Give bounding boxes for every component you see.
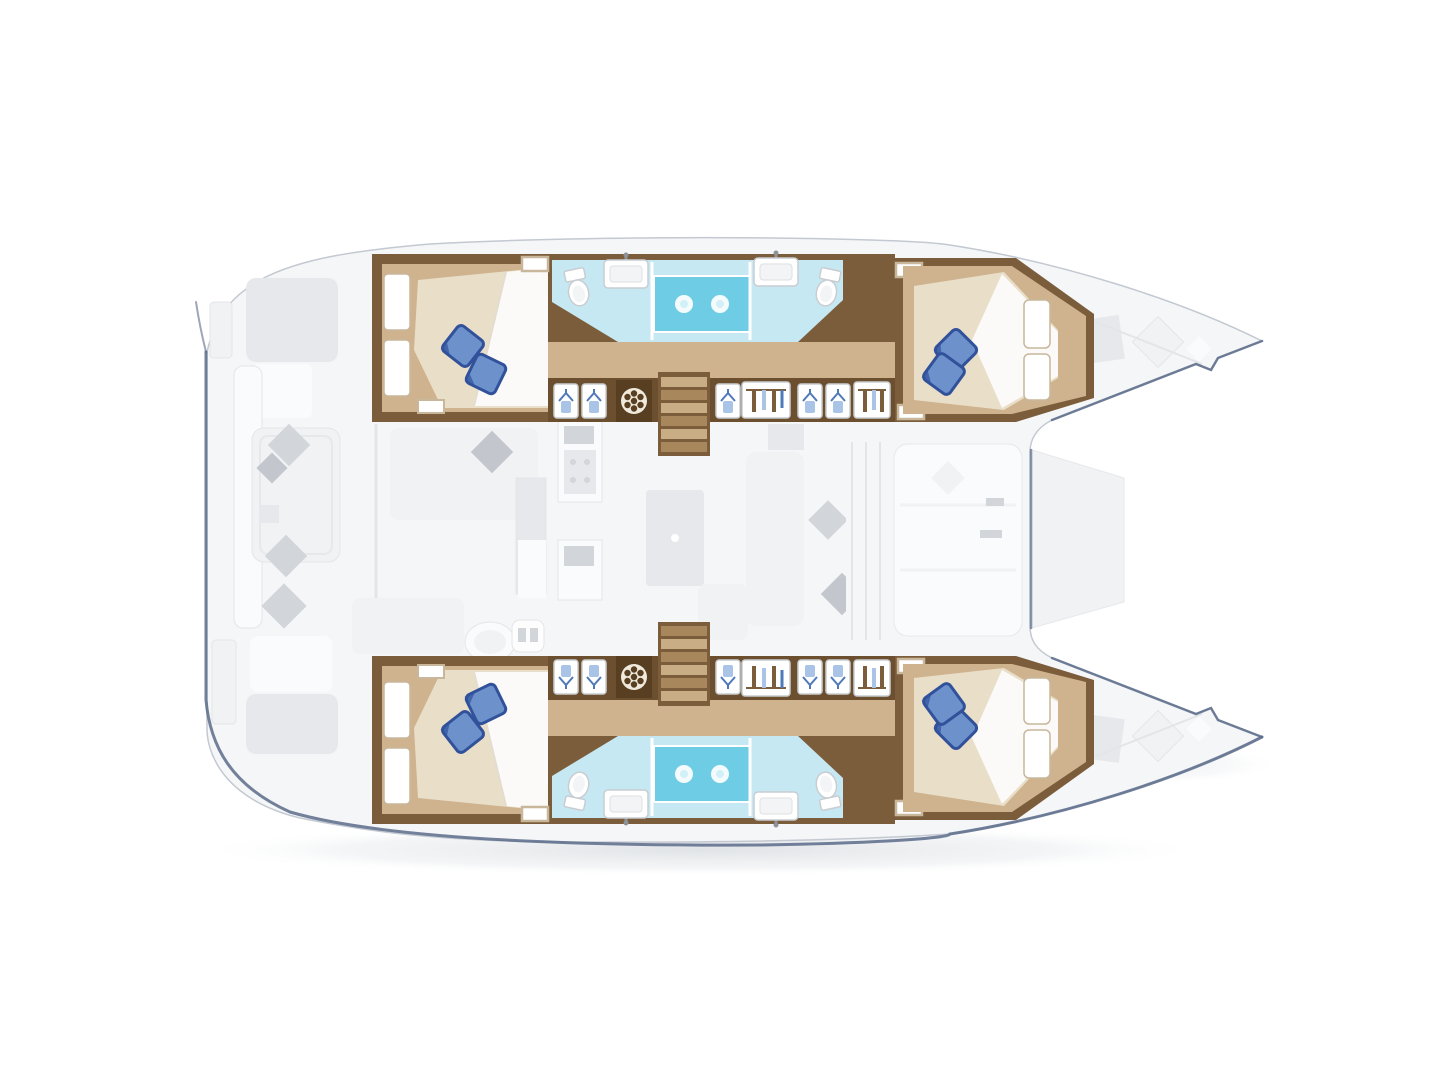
appliance — [512, 620, 544, 652]
scatter-cushion — [261, 505, 279, 523]
deck-fitting — [986, 498, 1004, 506]
forward-cockpit — [894, 444, 1124, 636]
transom-step — [212, 640, 236, 724]
saloon-seat — [352, 598, 464, 654]
saloon-sofa — [746, 452, 804, 626]
galley-sink — [564, 426, 594, 444]
front-windshield — [846, 438, 886, 644]
transom-step — [210, 302, 232, 358]
catamaran-floor-plan — [0, 0, 1440, 1080]
galley-counter — [518, 540, 546, 598]
cockpit-bench — [250, 636, 332, 692]
deck-fitting — [980, 530, 1002, 538]
stove — [564, 450, 596, 494]
cockpit-bench — [246, 278, 338, 362]
sideboard — [768, 424, 804, 450]
cockpit-bench — [246, 694, 338, 754]
forward-crossbeam-seat — [1032, 450, 1124, 628]
page — [0, 0, 1440, 1080]
